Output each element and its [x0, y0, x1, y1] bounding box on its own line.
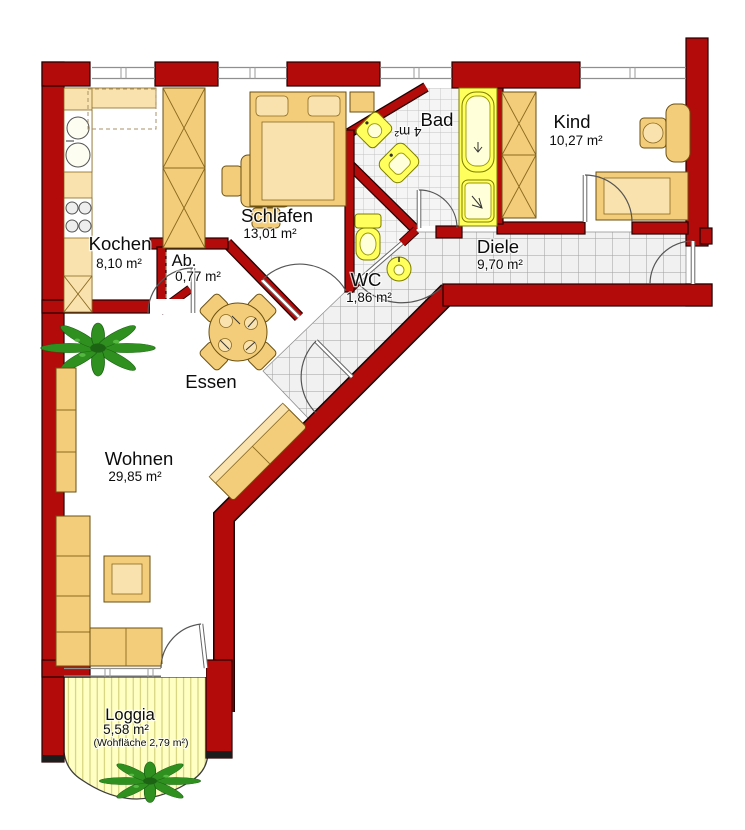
- kind-area: 10,27 m²: [549, 133, 603, 148]
- wardrobe-kind: [502, 92, 536, 218]
- sink-icon: [67, 117, 89, 139]
- floor-plan: Kochen 8,10 m² Ab. 0,77 m² Schlafen 13,0…: [0, 0, 745, 830]
- kochen-label: Kochen: [89, 233, 152, 254]
- essen-label: Essen: [185, 371, 236, 392]
- bad-area-rotated: 4 m²: [394, 124, 422, 139]
- wc-basin: [387, 257, 411, 281]
- wc-area: 1,86 m²: [346, 290, 392, 305]
- floor-plan-svg: Kochen 8,10 m² Ab. 0,77 m² Schlafen 13,0…: [0, 0, 745, 830]
- schlafen-area: 13,01 m²: [243, 226, 297, 241]
- bad-label: Bad: [421, 109, 454, 130]
- schlafen-label: Schlafen: [241, 205, 313, 226]
- diele-label: Diele: [477, 236, 519, 257]
- wohnen-area: 29,85 m²: [108, 469, 162, 484]
- door-loggia: [161, 624, 206, 677]
- wohnen-label: Wohnen: [105, 448, 174, 469]
- ab-label: Ab.: [172, 252, 197, 270]
- wardrobe-schlafen: [163, 88, 205, 248]
- coffee-table: [104, 556, 150, 602]
- sink-icon: [66, 143, 90, 167]
- kitchen-counter: [64, 88, 156, 312]
- window-kochen: [92, 67, 155, 79]
- window-bad: [380, 67, 452, 79]
- desk-kind: [640, 104, 690, 162]
- wc-label: WC: [351, 269, 382, 290]
- kind-label: Kind: [553, 111, 590, 132]
- toilet: [355, 214, 381, 260]
- dining-set: [198, 292, 277, 371]
- diele-area: 9,70 m²: [477, 257, 523, 272]
- shelf: [56, 368, 76, 492]
- window-kind: [580, 67, 686, 79]
- loggia-area: 5,58 m²: [103, 722, 149, 737]
- kochen-area: 8,10 m²: [96, 256, 142, 271]
- loggia-note: (Wohfläche 2,79 m²): [94, 737, 189, 749]
- nightstand: [350, 92, 374, 112]
- diele-floor: [263, 232, 686, 419]
- window-schlafen: [218, 67, 287, 79]
- bed-kind: [596, 172, 688, 220]
- shower: [462, 180, 494, 222]
- ab-area: 0,77 m²: [175, 269, 221, 284]
